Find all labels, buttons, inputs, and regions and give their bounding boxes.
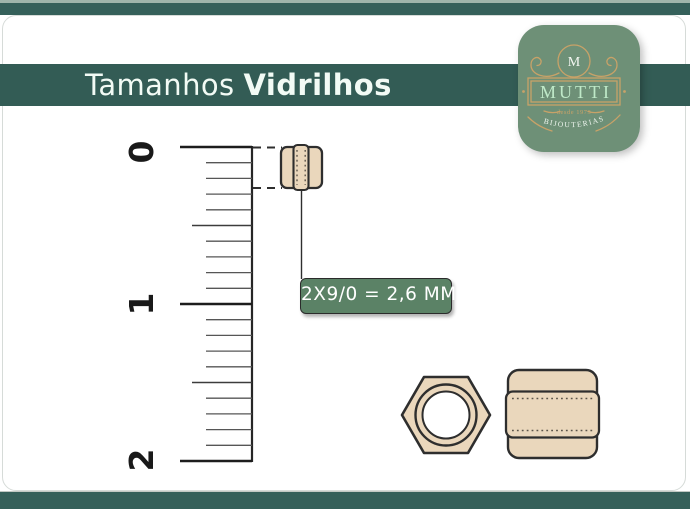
flourish-left-icon <box>531 58 559 77</box>
brand-name: MUTTI <box>540 82 612 102</box>
bugle-bead-front-view-icon <box>402 377 490 453</box>
bugle-bead-on-ruler-icon <box>281 145 322 190</box>
monogram-letter: M <box>568 55 581 70</box>
ruler-label-2: 2 <box>125 437 159 483</box>
brand-logo: M MUTTI desde 1973 BIJ <box>518 25 640 152</box>
bottom-bar <box>0 491 690 509</box>
ruler-ticks <box>180 147 252 461</box>
plaque-dot-icon <box>623 90 626 93</box>
plaque-dot-icon <box>522 90 525 93</box>
brand-logo-art: M MUTTI desde 1973 BIJ <box>518 25 640 152</box>
bead-middle-band <box>294 145 309 190</box>
size-callout: 2X9/0 = 2,6 MM <box>300 278 452 314</box>
brand-plaque: MUTTI <box>522 78 626 105</box>
tagline-text: desde 1973 <box>557 109 591 116</box>
ruler-label-0: 0 <box>125 129 159 175</box>
flourish-right-icon <box>589 58 617 77</box>
bugle-bead-side-view-icon <box>506 370 599 458</box>
brand-subtitle: BIJOUTERIAS <box>528 114 620 131</box>
ruler-label-1: 1 <box>125 281 159 327</box>
ruler <box>180 146 252 462</box>
brand-monogram-icon: M <box>531 45 617 77</box>
infographic: TamanhosVidrilhos <box>0 0 690 509</box>
bead-hole <box>423 392 470 439</box>
brand-tagline: desde 1973 <box>544 109 604 116</box>
